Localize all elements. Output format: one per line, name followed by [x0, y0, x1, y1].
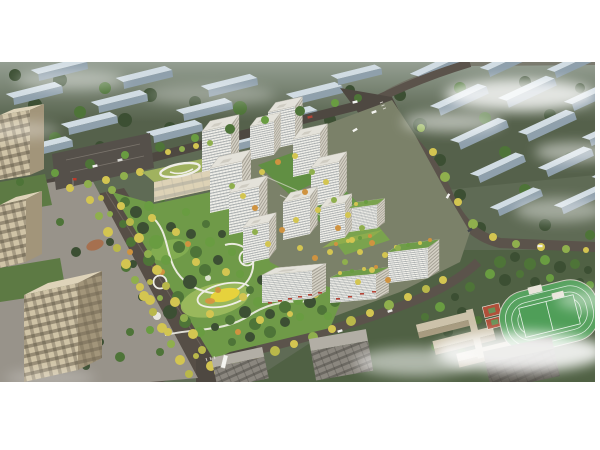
tree: [113, 244, 121, 252]
intersection-south: [196, 338, 268, 382]
tree: [144, 250, 152, 258]
park-ring-1: [154, 276, 167, 289]
horizon-haze: [0, 62, 595, 122]
shop-building: [527, 284, 542, 294]
tree: [489, 233, 497, 241]
car: [352, 128, 358, 133]
tower: [311, 152, 347, 207]
tree: [382, 252, 388, 258]
school-campus-southeast: [415, 252, 600, 375]
tree: [134, 233, 144, 243]
tree: [338, 271, 342, 275]
office-tower-3: [24, 271, 102, 382]
tree: [249, 318, 261, 330]
tree: [215, 287, 221, 293]
background-trees-northwest: [4, 69, 377, 170]
tree: [55, 160, 65, 170]
background-slab: [90, 89, 149, 114]
campus-buildings: [415, 301, 515, 375]
tree: [170, 297, 180, 307]
background-slab: [60, 111, 119, 136]
background-slab: [516, 108, 579, 144]
tree: [519, 184, 531, 196]
tree: [404, 293, 412, 301]
tree: [107, 211, 113, 217]
car: [446, 193, 451, 199]
courtyard-garden-3: [330, 222, 390, 255]
tree: [157, 295, 163, 301]
background-slab: [230, 127, 286, 151]
tree: [554, 261, 566, 273]
rooftop-garden-colorful: [322, 230, 382, 248]
tree: [331, 99, 339, 107]
gray-slab-2: [211, 347, 269, 389]
tree: [346, 316, 356, 326]
tree: [108, 186, 116, 194]
tree: [129, 260, 137, 268]
tree: [349, 237, 355, 243]
tree: [163, 305, 177, 319]
tree: [149, 308, 157, 316]
background-slab: [468, 150, 528, 185]
tree: [458, 348, 466, 356]
tree: [205, 237, 215, 247]
tree: [121, 151, 129, 159]
park-path-1: [150, 215, 253, 294]
tree: [315, 207, 321, 213]
tree: [98, 195, 104, 201]
tree: [367, 107, 377, 117]
central-park: [112, 190, 345, 360]
awning: [278, 300, 282, 302]
tree: [179, 146, 185, 152]
tree: [293, 217, 299, 223]
slab-south-2: [330, 267, 389, 303]
tree: [206, 361, 216, 371]
tree: [179, 316, 191, 328]
tree: [431, 343, 439, 351]
tree: [331, 197, 337, 203]
tree: [330, 297, 340, 307]
tree: [186, 229, 196, 239]
tree: [156, 348, 164, 356]
awning: [268, 302, 272, 304]
school-roof-loop: [159, 160, 201, 179]
boulevard-median: [106, 192, 215, 368]
background-slab: [175, 97, 234, 122]
office-plaza: [0, 176, 198, 382]
tree: [324, 312, 332, 320]
residential-towers: [202, 97, 439, 304]
tree: [355, 279, 361, 285]
playground-yellow: [209, 285, 241, 304]
tree: [144, 201, 154, 211]
tree: [85, 159, 95, 169]
tree: [15, 155, 25, 165]
tree: [28, 98, 42, 112]
office-courtyard-1: [0, 174, 52, 214]
car: [352, 100, 357, 103]
clouds-fog: [0, 70, 600, 386]
tree: [334, 242, 338, 246]
tree: [173, 241, 185, 253]
background-slab: [562, 78, 600, 113]
road-east: [368, 103, 595, 247]
tree: [106, 238, 114, 246]
tree: [519, 76, 531, 88]
tree: [510, 252, 520, 262]
tree: [49, 132, 61, 144]
basketball-courts: [482, 303, 504, 329]
background-slab: [536, 144, 596, 179]
tree: [162, 282, 170, 290]
tree: [85, 297, 95, 307]
park-ring-2: [240, 251, 255, 266]
tree: [485, 269, 495, 279]
tree: [191, 134, 199, 142]
tree: [213, 255, 223, 265]
tree: [457, 307, 467, 317]
tree: [185, 241, 191, 247]
tower: [250, 112, 281, 160]
car: [538, 245, 543, 247]
tree: [96, 338, 104, 346]
tower: [202, 115, 239, 172]
tree: [146, 326, 154, 334]
tree: [292, 153, 298, 159]
tree: [265, 241, 271, 247]
awning: [372, 291, 376, 293]
tree: [121, 259, 131, 269]
rooftop-garden-trees: [334, 200, 432, 275]
road-network: [0, 63, 595, 382]
tree: [465, 282, 475, 292]
awning: [336, 298, 340, 300]
tree: [580, 193, 590, 203]
awning: [298, 296, 302, 298]
tree: [537, 243, 545, 251]
tree: [564, 152, 576, 164]
background-residential-northwest: [5, 57, 383, 159]
tree: [257, 275, 267, 285]
tree: [161, 255, 171, 265]
background-slab: [448, 116, 511, 152]
crosswalks: [206, 102, 386, 361]
background-slab: [590, 157, 600, 187]
background-slab: [145, 119, 204, 144]
tree: [152, 265, 162, 275]
tree: [275, 159, 281, 165]
awning: [318, 292, 322, 294]
tree: [9, 69, 21, 81]
street-trees-north: [16, 94, 362, 186]
road-north: [0, 97, 392, 196]
office-tower-1: [0, 104, 44, 180]
tree: [290, 340, 298, 348]
tree: [47, 309, 53, 315]
background-slab: [18, 135, 74, 159]
car: [371, 110, 377, 114]
storefront-awnings: [268, 291, 376, 304]
photo-area: [0, 44, 600, 390]
awning: [360, 293, 364, 295]
tree: [364, 200, 368, 204]
courtyard-garden-2: [300, 185, 365, 228]
background-trees-northeast: [394, 76, 595, 240]
tree: [235, 329, 241, 335]
tree: [172, 228, 180, 236]
tree: [418, 241, 422, 245]
tree: [180, 314, 188, 322]
gray-slab-1: [309, 329, 373, 380]
tree: [56, 218, 64, 226]
tree: [297, 245, 303, 251]
tree: [120, 172, 128, 180]
tree: [230, 219, 240, 229]
rendering-canvas: [0, 0, 600, 450]
tree: [229, 183, 235, 189]
tree: [193, 143, 199, 149]
tree: [369, 240, 375, 246]
tree: [172, 291, 184, 303]
tree: [327, 249, 333, 255]
awning: [348, 296, 352, 298]
tree: [346, 239, 350, 243]
tree: [546, 274, 554, 282]
tree: [443, 327, 453, 337]
tree: [117, 202, 125, 210]
tree: [143, 254, 155, 266]
tree: [394, 245, 398, 249]
tree: [583, 247, 589, 253]
tree: [189, 96, 201, 108]
sports-field: [494, 274, 600, 358]
tree: [312, 255, 318, 261]
tree: [385, 277, 391, 283]
parking-lot: [52, 133, 154, 192]
tree: [131, 276, 139, 284]
tree: [358, 236, 362, 240]
tree: [16, 178, 24, 186]
tree: [155, 142, 165, 152]
background-slab: [310, 122, 360, 143]
tree: [254, 134, 266, 146]
tree: [126, 328, 134, 336]
tree: [53, 73, 67, 87]
background-slab: [580, 115, 600, 148]
tree: [149, 235, 163, 249]
tree: [335, 225, 341, 231]
tower: [268, 97, 303, 150]
tree: [499, 146, 511, 158]
tree: [198, 346, 206, 354]
tree: [225, 124, 235, 134]
background-slab: [30, 57, 89, 82]
ground-base: [0, 62, 595, 382]
cloud-southeast: [435, 332, 600, 372]
tree: [232, 359, 242, 369]
tree: [454, 189, 466, 201]
tree: [309, 169, 315, 175]
tower: [229, 176, 267, 235]
tree: [576, 278, 584, 286]
tree: [516, 270, 524, 278]
tree: [233, 101, 247, 115]
tree: [479, 112, 491, 124]
tree: [428, 238, 432, 242]
low-slab: [349, 198, 385, 232]
boulevard-trees: [86, 186, 216, 378]
tree: [440, 172, 450, 182]
tree: [524, 258, 536, 270]
cloud-northeast: [445, 79, 595, 111]
tree: [421, 313, 429, 321]
tree: [102, 176, 110, 184]
tree: [121, 262, 131, 272]
tree: [562, 245, 570, 253]
tree: [328, 325, 336, 333]
office-courtyard-2: [0, 258, 66, 302]
tree: [354, 202, 358, 206]
tree: [586, 281, 594, 289]
tower: [293, 124, 328, 177]
background-slab: [330, 64, 383, 86]
background-residential-northeast: [408, 44, 600, 218]
playground-orange: [205, 298, 215, 304]
vehicles: [92, 100, 542, 333]
football-pitch: [519, 295, 581, 338]
street-trees-south: [214, 276, 447, 376]
tree: [252, 205, 258, 211]
background-slab: [428, 82, 491, 118]
slab-southeast: [388, 239, 439, 283]
car: [117, 158, 122, 161]
tree: [406, 243, 410, 247]
tree: [499, 274, 511, 286]
rooftop-garden-mid: [349, 198, 385, 208]
tree: [245, 332, 255, 342]
tree: [222, 268, 230, 276]
tree: [126, 237, 136, 247]
background-slab: [115, 65, 174, 90]
tree: [183, 275, 197, 289]
tree: [82, 362, 90, 370]
tree: [252, 353, 260, 361]
tree: [165, 149, 171, 155]
tree: [164, 122, 176, 134]
tree: [99, 82, 111, 94]
tree: [199, 264, 211, 276]
park-canopy: [153, 312, 161, 320]
tree: [308, 332, 318, 342]
tree: [417, 124, 425, 132]
tree: [280, 317, 290, 327]
park-canopy-2: [205, 275, 211, 281]
tree: [84, 180, 92, 188]
tree: [136, 168, 144, 176]
tree: [137, 222, 149, 234]
tree: [354, 94, 362, 102]
tree: [265, 309, 275, 319]
awning: [288, 298, 292, 300]
tree: [195, 327, 205, 337]
tree: [434, 154, 446, 166]
tree: [296, 313, 304, 321]
rooftop-garden-s: [330, 267, 389, 278]
tree: [136, 283, 144, 291]
tree: [435, 302, 445, 312]
tree: [394, 89, 406, 101]
bus: [221, 355, 229, 369]
tree: [357, 249, 363, 255]
tree: [454, 198, 462, 206]
residential-site: [225, 100, 470, 318]
tree: [252, 229, 258, 235]
tree: [239, 306, 251, 318]
tree: [228, 338, 236, 346]
tree: [384, 300, 394, 310]
tree: [51, 169, 59, 177]
park-lawn: [177, 276, 253, 324]
tree: [253, 297, 263, 307]
tree: [218, 230, 226, 238]
tree: [66, 184, 74, 192]
tree: [139, 291, 149, 301]
tree: [207, 140, 213, 146]
road-south: [150, 262, 478, 382]
tree: [74, 106, 86, 118]
tree: [279, 301, 291, 313]
tree: [374, 265, 378, 269]
tree: [157, 323, 167, 333]
tree: [439, 276, 447, 284]
aerial-rendering-image: [0, 0, 600, 450]
school-building: [142, 158, 218, 202]
tree: [474, 316, 482, 324]
tree: [138, 293, 146, 301]
tree: [193, 353, 199, 359]
background-slab: [5, 81, 64, 106]
tree: [429, 148, 437, 156]
plaza-playground: [85, 237, 105, 253]
tree: [366, 309, 374, 317]
tree: [317, 305, 327, 315]
tree: [540, 255, 550, 265]
park-loop-path: [195, 278, 253, 312]
tree: [190, 246, 202, 258]
park-path-2: [165, 301, 315, 335]
tree: [130, 206, 142, 218]
tree: [584, 266, 592, 274]
boulevard-west: [88, 188, 232, 378]
tree: [120, 197, 130, 207]
tree: [302, 189, 308, 195]
tree: [246, 286, 254, 294]
tree: [323, 179, 329, 185]
tree: [264, 326, 276, 338]
tree: [185, 370, 193, 378]
office-tower-2: [0, 191, 42, 268]
street-trees-east: [417, 124, 589, 253]
courtyard-trees: [229, 153, 401, 285]
tree: [103, 227, 113, 237]
tree: [454, 82, 466, 94]
tree: [188, 329, 198, 339]
ground-background: [0, 62, 595, 200]
tree: [52, 273, 60, 281]
office-district-west: [0, 104, 198, 382]
tree: [127, 249, 133, 255]
